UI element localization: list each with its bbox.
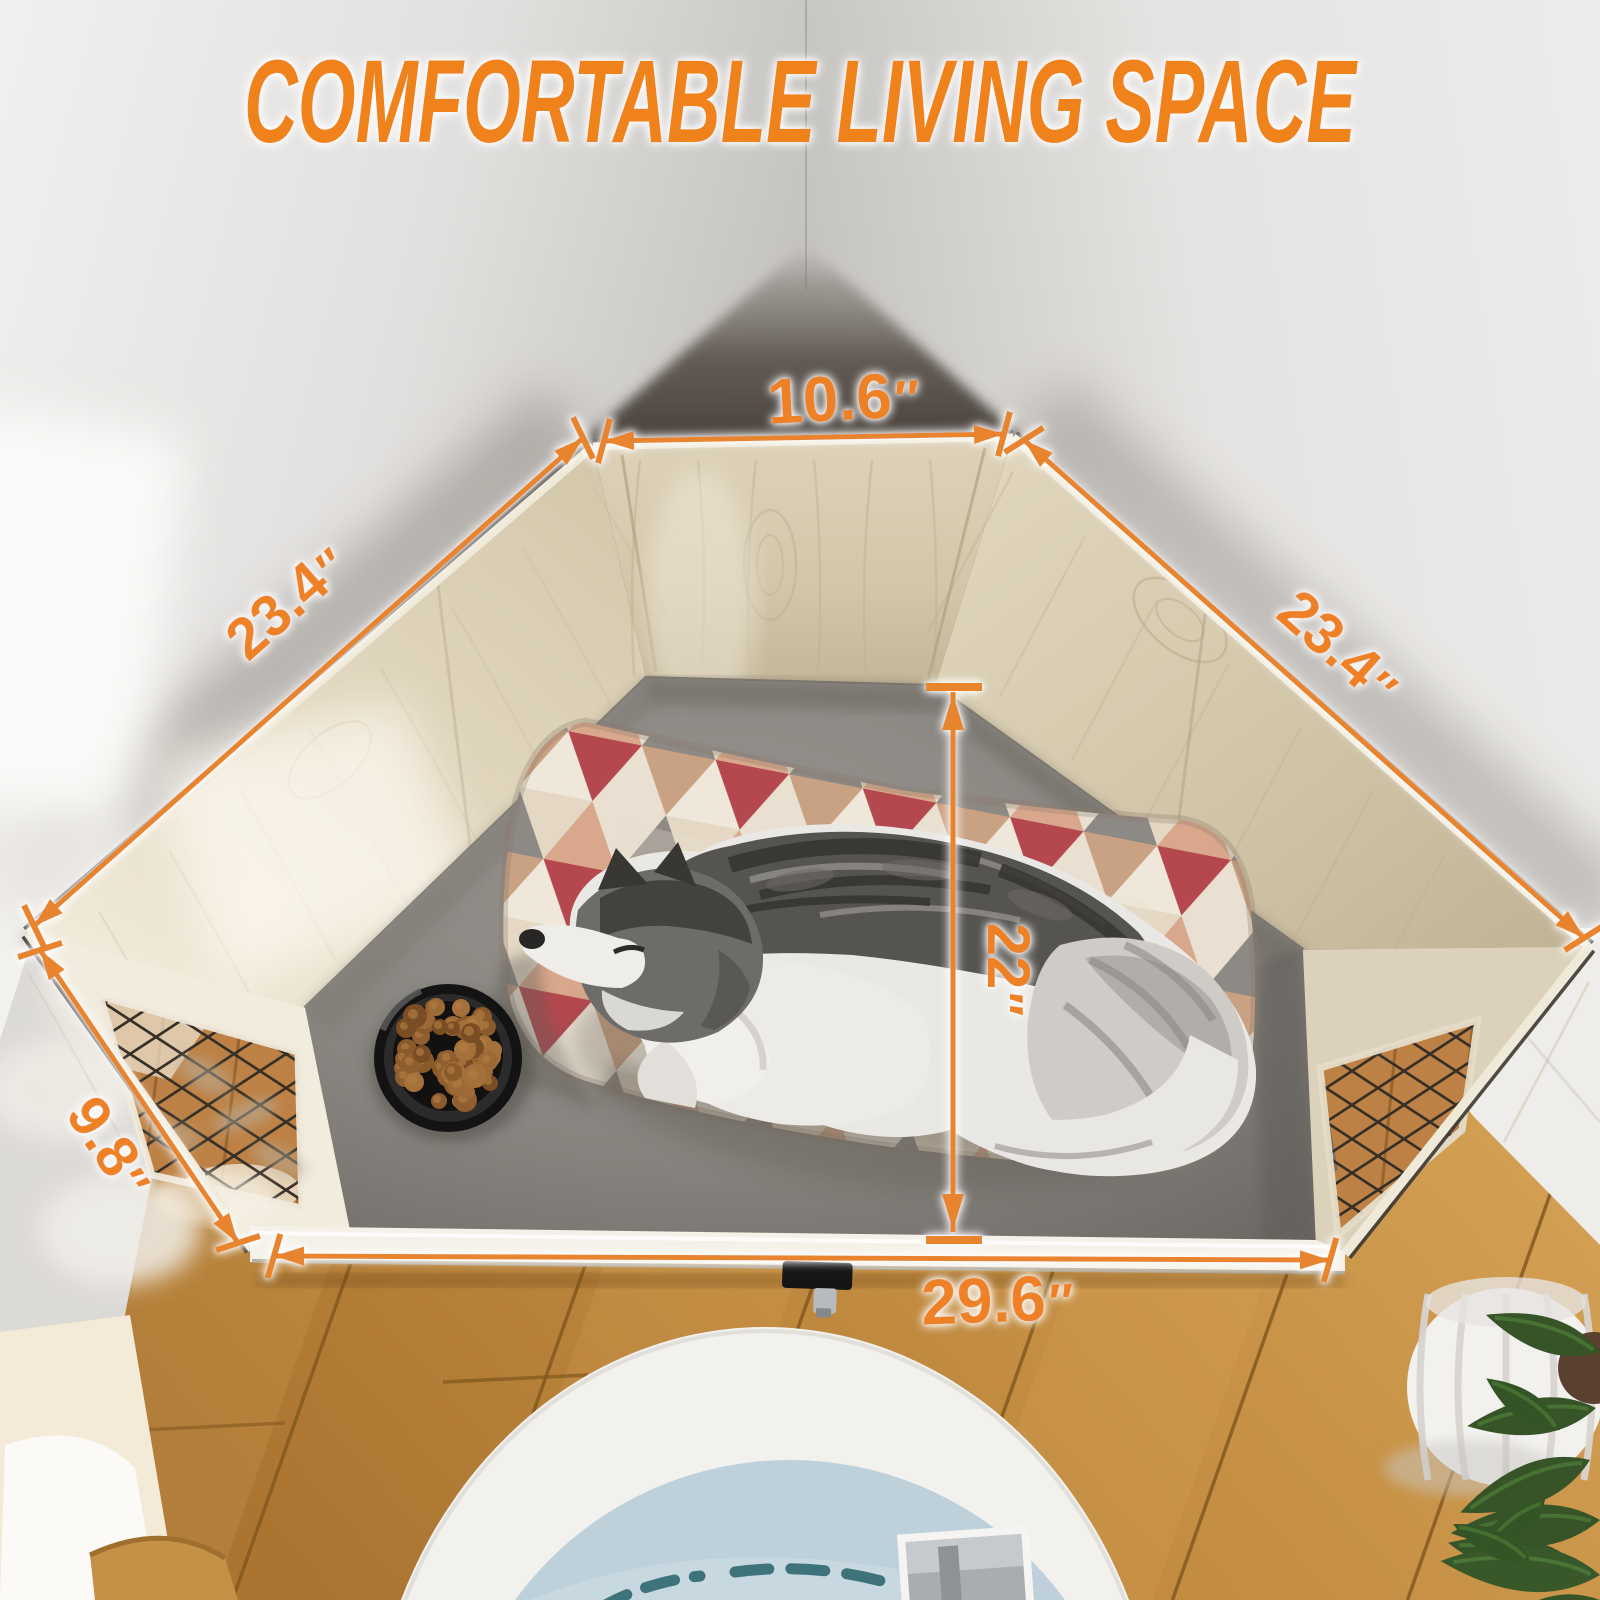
svg-text:22′′: 22′′ [975, 923, 1042, 1016]
svg-text:COMFORTABLE LIVING SPACE: COMFORTABLE LIVING SPACE [244, 36, 1358, 168]
